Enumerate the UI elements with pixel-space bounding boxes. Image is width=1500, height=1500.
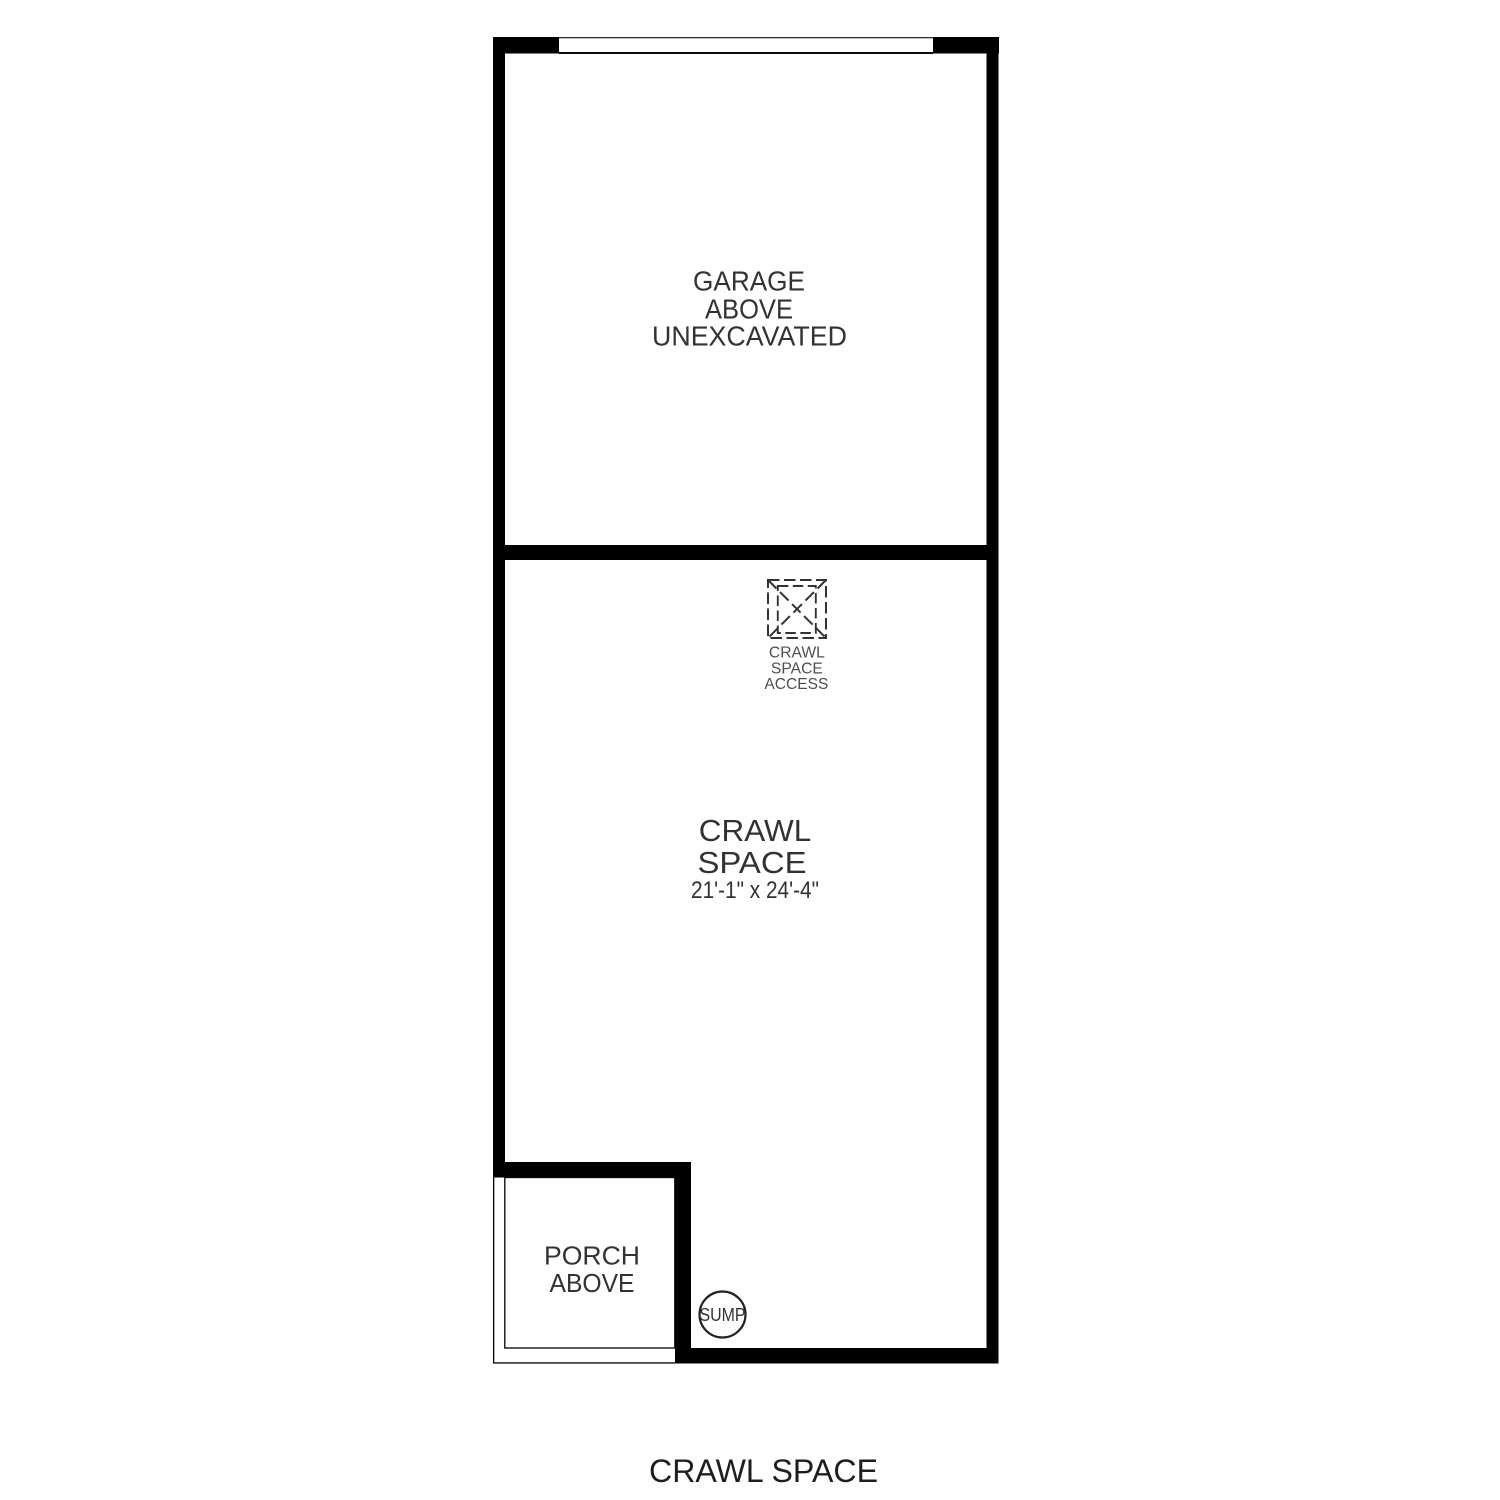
svg-text:SPACE: SPACE [698,845,807,880]
svg-text:21'-1" x 24'-4": 21'-1" x 24'-4" [691,877,819,904]
svg-text:PORCH: PORCH [544,1241,640,1271]
svg-text:CRAWL: CRAWL [699,813,812,848]
svg-text:CRAWL SPACE: CRAWL SPACE [649,1453,878,1489]
svg-text:SPACE: SPACE [771,661,823,678]
svg-text:ABOVE: ABOVE [550,1268,635,1298]
svg-text:CRAWL: CRAWL [769,645,825,662]
svg-text:UNEXCAVATED: UNEXCAVATED [652,321,847,352]
svg-text:SUMP: SUMP [700,1304,746,1325]
svg-text:GARAGE: GARAGE [693,266,805,297]
svg-text:ACCESS: ACCESS [764,676,828,693]
